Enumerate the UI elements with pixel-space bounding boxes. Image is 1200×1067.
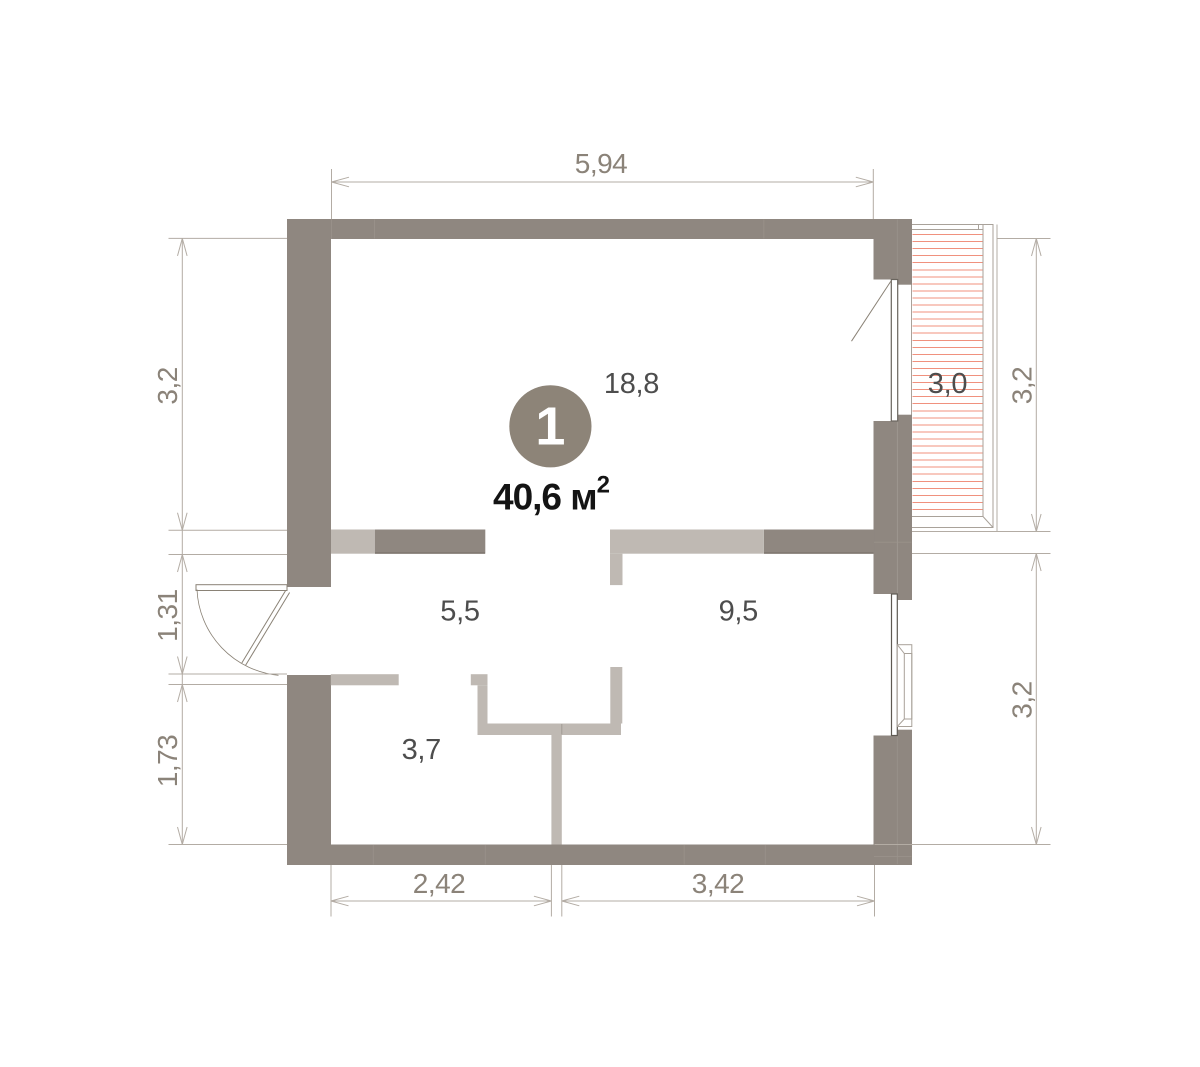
svg-text:3,0: 3,0 [928, 368, 967, 400]
svg-text:3,2: 3,2 [1007, 681, 1038, 718]
svg-text:1,31: 1,31 [152, 589, 183, 642]
svg-text:3,7: 3,7 [402, 734, 441, 766]
svg-text:3,2: 3,2 [152, 367, 183, 404]
svg-text:3,2: 3,2 [1007, 367, 1038, 404]
svg-text:5,94: 5,94 [575, 148, 628, 179]
svg-text:3,42: 3,42 [692, 868, 745, 899]
svg-text:9,5: 9,5 [719, 596, 758, 628]
svg-text:1: 1 [535, 397, 565, 457]
svg-text:1,73: 1,73 [152, 735, 183, 788]
svg-text:5,5: 5,5 [440, 596, 479, 628]
svg-text:40,6 м2: 40,6 м2 [493, 472, 610, 518]
svg-text:2,42: 2,42 [413, 868, 466, 899]
svg-text:18,8: 18,8 [604, 368, 659, 400]
